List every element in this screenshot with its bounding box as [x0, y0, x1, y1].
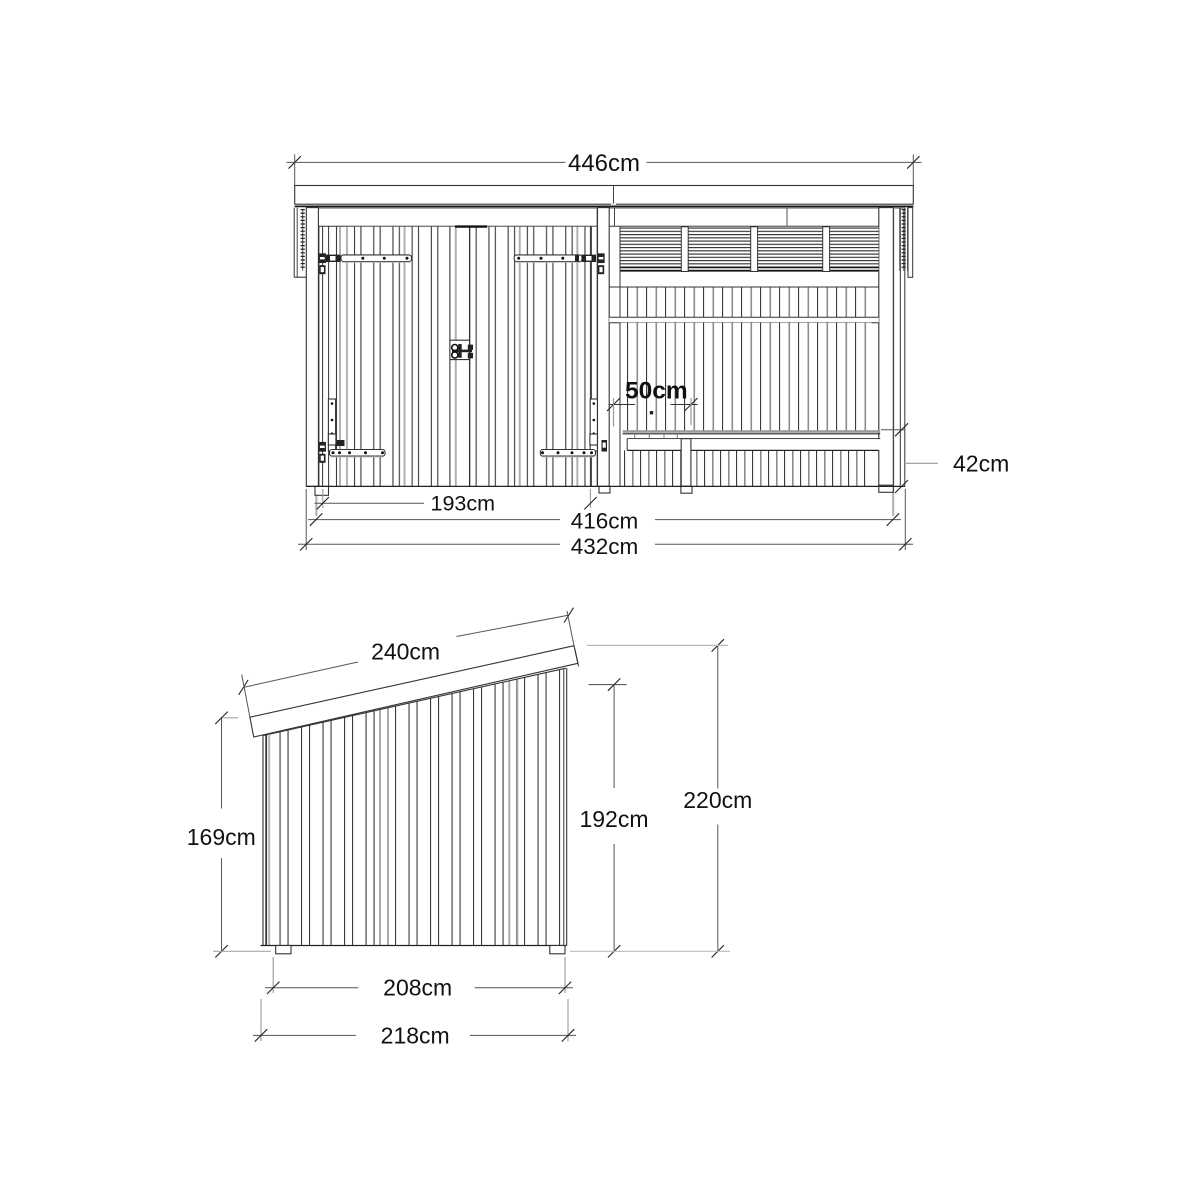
svg-text:169cm: 169cm — [187, 824, 256, 850]
svg-text:42cm: 42cm — [953, 451, 1009, 477]
svg-text:446cm: 446cm — [568, 150, 640, 177]
svg-text:432cm: 432cm — [571, 534, 639, 559]
svg-text:208cm: 208cm — [383, 975, 452, 1001]
svg-text:192cm: 192cm — [579, 806, 648, 832]
svg-text:220cm: 220cm — [683, 787, 752, 813]
svg-text:50cm: 50cm — [625, 377, 688, 404]
svg-text:193cm: 193cm — [431, 492, 496, 516]
svg-text:416cm: 416cm — [571, 508, 639, 533]
svg-text:218cm: 218cm — [381, 1022, 450, 1048]
svg-text:240cm: 240cm — [371, 638, 440, 664]
